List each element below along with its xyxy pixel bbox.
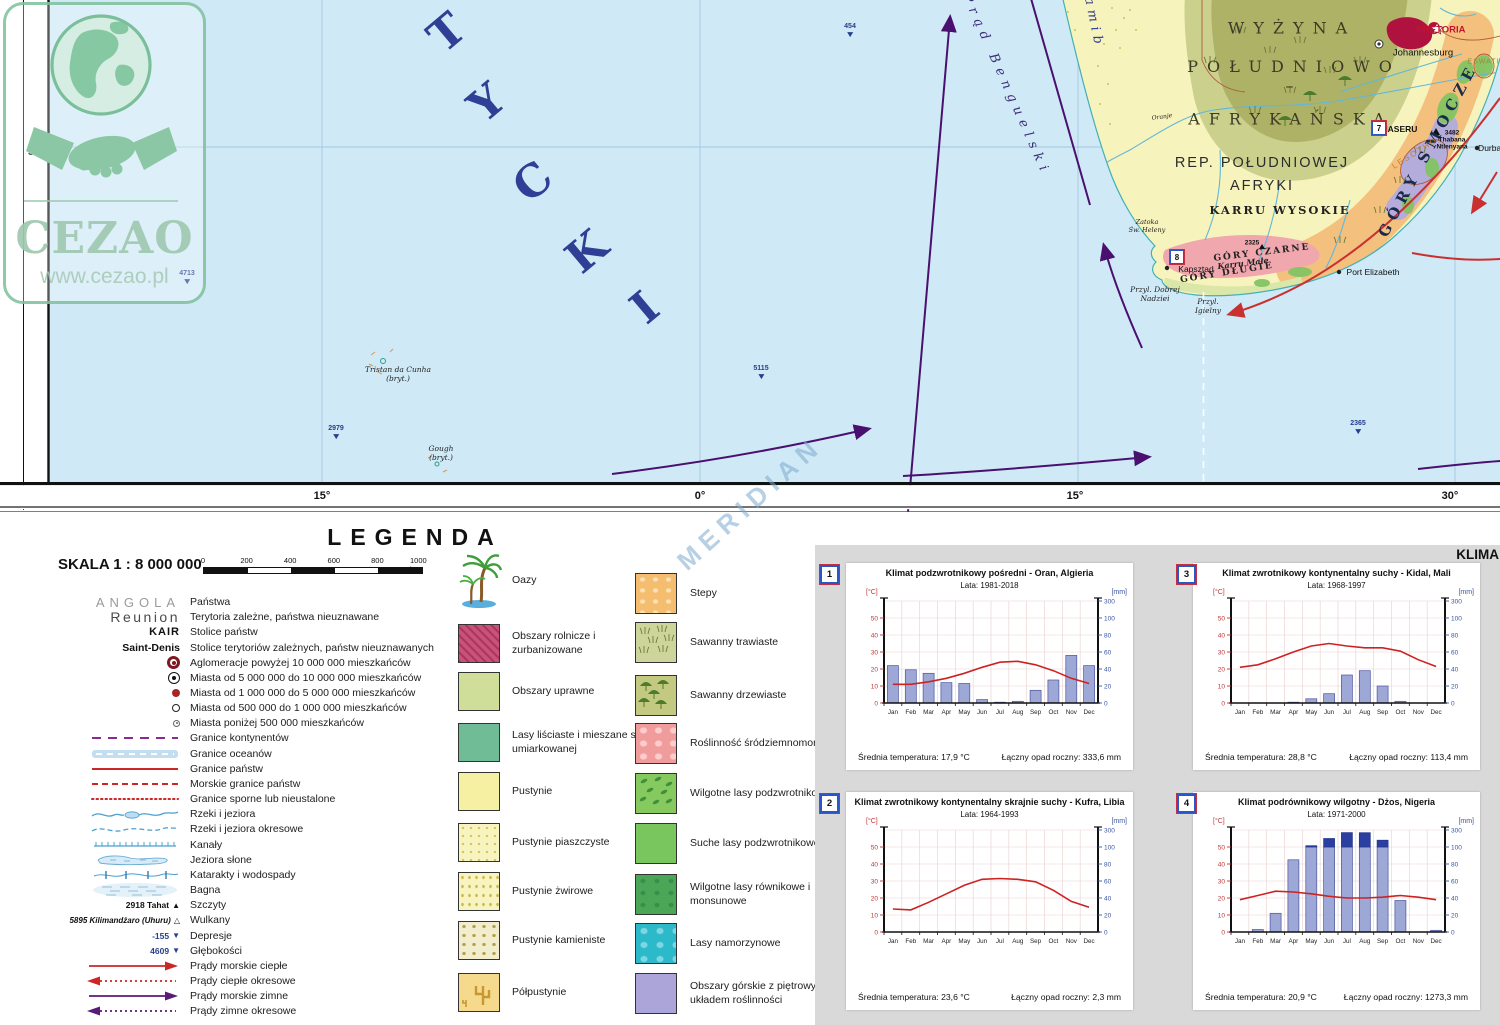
svg-text:Nov: Nov xyxy=(1413,938,1425,945)
chart-years: Lata: 1971-2000 xyxy=(1193,810,1480,819)
svg-text:Mar: Mar xyxy=(923,938,934,945)
svg-text:20: 20 xyxy=(1451,683,1459,690)
station-marker-7: 7 xyxy=(1372,121,1386,135)
legend-row-label: Granice kontynentów xyxy=(190,732,289,744)
chart-title: Klimat zwrotnikowy kontynentalny suchy -… xyxy=(1197,568,1476,578)
svg-text:Jun: Jun xyxy=(977,938,988,945)
svg-text:40: 40 xyxy=(871,861,879,868)
svg-text:Oct: Oct xyxy=(1049,709,1059,716)
legend-symbol-city-1m xyxy=(40,689,190,697)
veg-swatch-medit xyxy=(635,723,677,764)
svg-text:Jan: Jan xyxy=(888,938,899,945)
chart-marker-1: 1 xyxy=(820,565,839,584)
legend-section: LEGENDA SKALA 1 : 8 000 000 020040060080… xyxy=(0,516,815,1025)
svg-text:Oct: Oct xyxy=(1396,938,1406,945)
city-small-icon xyxy=(173,720,180,727)
svg-text:Sep: Sep xyxy=(1377,709,1389,716)
svg-text:300: 300 xyxy=(1104,598,1115,605)
svg-text:Apr: Apr xyxy=(1288,709,1298,716)
svg-text:Oct: Oct xyxy=(1396,709,1406,716)
legend-symbol-river xyxy=(40,807,190,821)
temp-axis-unit: [°C] xyxy=(1213,589,1225,596)
legend-row-label: Szczyty xyxy=(190,899,226,911)
poster-map-of-africa: T Y C K I Prąd Benguelski Namib WYŻYNA P… xyxy=(0,0,1500,1025)
precip-axis-unit: [mm] xyxy=(1458,589,1474,596)
avg-temp-text: Średnia temperatura: 23,6 °C xyxy=(858,992,970,1002)
legend-symbol-country-name: ANGOLA xyxy=(40,595,190,610)
svg-text:60: 60 xyxy=(1104,878,1112,885)
veg-swatch-sand xyxy=(458,823,500,862)
annual-precip-text: Łączny opad roczny: 333,6 mm xyxy=(1002,752,1121,762)
chart-years: Lata: 1964-1993 xyxy=(846,810,1133,819)
svg-text:20: 20 xyxy=(1218,666,1226,673)
map-section: T Y C K I Prąd Benguelski Namib WYŻYNA P… xyxy=(0,0,1500,516)
legend-symbol-border-continent xyxy=(40,732,190,744)
annual-precip-text: Łączny opad roczny: 1273,3 mm xyxy=(1344,992,1468,1002)
legend-symbol-river-seasonal xyxy=(40,822,190,836)
scale-bar-segments xyxy=(203,567,423,574)
chart-marker-3: 3 xyxy=(1177,565,1196,584)
svg-text:100: 100 xyxy=(1451,615,1462,622)
svg-text:40: 40 xyxy=(1451,666,1459,673)
svg-text:20: 20 xyxy=(1218,895,1226,902)
avg-temp-text: Średnia temperatura: 17,9 °C xyxy=(858,752,970,762)
svg-text:300: 300 xyxy=(1104,827,1115,834)
svg-text:Sep: Sep xyxy=(1030,709,1042,716)
svg-text:Mar: Mar xyxy=(1270,938,1281,945)
svg-text:Apr: Apr xyxy=(941,938,951,945)
svg-text:50: 50 xyxy=(1218,844,1226,851)
svg-text:Nov: Nov xyxy=(1066,709,1078,716)
svg-text:Mar: Mar xyxy=(1270,709,1281,716)
svg-text:Jan: Jan xyxy=(1235,709,1246,716)
svg-text:10: 10 xyxy=(871,912,879,919)
legend-symbol-waterfall xyxy=(40,868,190,882)
veg-swatch-stepy xyxy=(635,573,677,614)
climograph-card-oran: Klimat podzwrotnikowy pośredni - Oran, A… xyxy=(846,563,1133,770)
veg-swatch-drysub xyxy=(635,823,677,864)
svg-text:Sep: Sep xyxy=(1030,938,1042,945)
legend-row-label: Katarakty i wodospady xyxy=(190,869,296,881)
depression-icon: ▼ xyxy=(172,931,180,940)
veg-swatch-wetsub xyxy=(635,773,677,814)
legend-symbol-border-disputed xyxy=(40,793,190,805)
svg-text:0: 0 xyxy=(874,700,878,707)
legend-symbol-border-ocean xyxy=(40,748,190,760)
svg-text:20: 20 xyxy=(1104,912,1112,919)
svg-text:20: 20 xyxy=(1451,912,1459,919)
svg-text:0: 0 xyxy=(1451,700,1455,707)
svg-text:40: 40 xyxy=(1451,895,1459,902)
climograph-plot: 01020304050020406080100300JanFebMarAprMa… xyxy=(1193,597,1480,719)
legend-symbol-current-cold-seasonal xyxy=(40,1005,190,1017)
climograph-plot: 01020304050020406080100300JanFebMarAprMa… xyxy=(846,826,1133,948)
svg-text:Nov: Nov xyxy=(1413,709,1425,716)
legend-symbol-current-warm-seasonal xyxy=(40,975,190,987)
city-5m-icon xyxy=(168,672,180,684)
svg-text:Dec: Dec xyxy=(1430,938,1441,945)
station-marker-8: 8 xyxy=(1170,250,1184,264)
chart-years: Lata: 1981-2018 xyxy=(846,581,1133,590)
svg-text:50: 50 xyxy=(1218,615,1226,622)
svg-text:Feb: Feb xyxy=(905,709,916,716)
legend-symbol-salt-lake xyxy=(40,852,190,868)
veg-swatch-savtree xyxy=(635,675,677,716)
legend-row-label: Miasta od 5 000 000 do 10 000 000 mieszk… xyxy=(190,672,421,684)
legend-row-label: Prądy morskie ciepłe xyxy=(190,960,287,972)
veg-swatch-crops xyxy=(458,672,500,711)
scale-tick: 800 xyxy=(371,556,384,565)
legend-symbol-border-sea xyxy=(40,778,190,790)
temp-axis-unit: [°C] xyxy=(866,818,878,825)
legend-row-label: Miasta od 1 000 000 do 5 000 000 mieszka… xyxy=(190,687,415,699)
veg-swatch-agri xyxy=(458,624,500,663)
svg-text:30: 30 xyxy=(871,649,879,656)
legend-symbol-depression: -155▼ xyxy=(40,931,190,941)
svg-text:Dec: Dec xyxy=(1083,709,1094,716)
svg-text:30: 30 xyxy=(1218,878,1226,885)
legend-row-label: Morskie granice państw xyxy=(190,778,300,790)
precip-axis-unit: [mm] xyxy=(1111,818,1127,825)
legend-row-label: Jeziora słone xyxy=(190,854,252,866)
legend-symbol-city-10m xyxy=(40,656,190,669)
climograph-card-kidal: Klimat zwrotnikowy kontynentalny suchy -… xyxy=(1193,563,1480,770)
svg-text:80: 80 xyxy=(1104,861,1112,868)
svg-text:100: 100 xyxy=(1451,844,1462,851)
legend-title: LEGENDA xyxy=(290,524,540,551)
legend-symbol-territory-name: Reunion xyxy=(40,609,190,625)
svg-text:Jul: Jul xyxy=(996,709,1004,716)
legend-symbol-city-5m xyxy=(40,672,190,684)
chart-title: Klimat podrównikowy wilgotny - Dżos, Nig… xyxy=(1197,797,1476,807)
legend-row-label: Stolice terytoriów zależnych, państw nie… xyxy=(190,642,434,654)
svg-text:50: 50 xyxy=(871,615,879,622)
svg-text:10: 10 xyxy=(1218,683,1226,690)
veg-swatch-savgrass xyxy=(635,622,677,663)
legend-row-label: Państwa xyxy=(190,596,230,608)
legend-symbol-depth: 4609▼ xyxy=(40,946,190,956)
scale-label: SKALA 1 : 8 000 000 xyxy=(58,556,202,573)
chart-marker-4: 4 xyxy=(1177,794,1196,813)
svg-text:10: 10 xyxy=(1218,912,1226,919)
veg-swatch-equat xyxy=(635,874,677,915)
veg-swatch-semi xyxy=(458,973,500,1012)
map-drawing xyxy=(0,0,1500,516)
legend-symbol-canal xyxy=(40,839,190,851)
scale-tick: 0 xyxy=(201,556,205,565)
veg-swatch-desert xyxy=(458,772,500,811)
depth-icon: ▼ xyxy=(172,946,180,955)
city-10m-icon xyxy=(167,656,180,669)
avg-temp-text: Średnia temperatura: 20,9 °C xyxy=(1205,992,1317,1002)
svg-text:Jul: Jul xyxy=(1343,938,1351,945)
svg-text:Mar: Mar xyxy=(923,709,934,716)
svg-text:300: 300 xyxy=(1451,598,1462,605)
legend-symbol-peak: 2918 Tahat▲ xyxy=(40,900,190,910)
temp-axis-unit: [°C] xyxy=(866,589,878,596)
svg-text:May: May xyxy=(958,709,971,716)
legend-symbol-swamp xyxy=(40,882,190,898)
precip-axis-unit: [mm] xyxy=(1458,818,1474,825)
svg-text:Aug: Aug xyxy=(1012,938,1024,945)
svg-text:Jun: Jun xyxy=(1324,709,1335,716)
legend-row-label: Wulkany xyxy=(190,914,230,926)
climograph-card-kufra: Klimat zwrotnikowy kontynentalny skrajni… xyxy=(846,792,1133,1010)
legend-symbol-current-warm xyxy=(40,960,190,972)
city-500k-icon xyxy=(172,704,180,712)
peak-icon: ▲ xyxy=(172,901,180,910)
city-1m-icon xyxy=(172,689,180,697)
annual-precip-text: Łączny opad roczny: 2,3 mm xyxy=(1011,992,1121,1002)
legend-row-label: Rzeki i jeziora xyxy=(190,808,255,820)
svg-text:May: May xyxy=(1305,938,1318,945)
svg-text:50: 50 xyxy=(871,844,879,851)
climograph-card-dzos: Klimat podrównikowy wilgotny - Dżos, Nig… xyxy=(1193,792,1480,1010)
svg-text:0: 0 xyxy=(1221,700,1225,707)
svg-text:May: May xyxy=(1305,709,1318,716)
legend-row-label: Granice państw xyxy=(190,763,263,775)
svg-text:40: 40 xyxy=(1218,861,1226,868)
svg-text:20: 20 xyxy=(871,666,879,673)
svg-text:Jun: Jun xyxy=(977,709,988,716)
svg-text:Feb: Feb xyxy=(905,938,916,945)
svg-text:40: 40 xyxy=(1104,895,1112,902)
chart-marker-2: 2 xyxy=(820,794,839,813)
svg-text:60: 60 xyxy=(1451,878,1459,885)
legend-row-label: Granice oceanów xyxy=(190,748,272,760)
svg-text:Jul: Jul xyxy=(996,938,1004,945)
svg-text:Aug: Aug xyxy=(1359,709,1371,716)
legend-row-label: Głębokości xyxy=(190,945,242,957)
svg-text:Jul: Jul xyxy=(1343,709,1351,716)
scale-tick: 200 xyxy=(240,556,253,565)
svg-text:Jun: Jun xyxy=(1324,938,1335,945)
legend-row-label: Kanały xyxy=(190,839,222,851)
legend-row-label: Rzeki i jeziora okresowe xyxy=(190,823,303,835)
legend-row-label: Prądy morskie zimne xyxy=(190,990,288,1002)
svg-text:40: 40 xyxy=(1218,632,1226,639)
volcano-icon: △ xyxy=(174,916,180,925)
legend-row-label: Miasta poniżej 500 000 mieszkańców xyxy=(190,717,364,729)
avg-temp-text: Średnia temperatura: 28,8 °C xyxy=(1205,752,1317,762)
svg-text:0: 0 xyxy=(874,929,878,936)
scale-tick: 600 xyxy=(328,556,341,565)
svg-text:40: 40 xyxy=(1104,666,1112,673)
climograph-plot: 01020304050020406080100300JanFebMarAprMa… xyxy=(846,597,1133,719)
svg-text:100: 100 xyxy=(1104,844,1115,851)
legend-symbol-volcano: 5895 Kilimandżaro (Uhuru)△ xyxy=(40,916,190,925)
svg-text:0: 0 xyxy=(1451,929,1455,936)
panel-header: KLIMA xyxy=(1456,547,1499,562)
chart-title: Klimat zwrotnikowy kontynentalny skrajni… xyxy=(850,797,1129,807)
legend-symbol-current-cold xyxy=(40,990,190,1002)
svg-text:Jan: Jan xyxy=(1235,938,1246,945)
svg-text:Aug: Aug xyxy=(1359,938,1371,945)
scale-tick: 400 xyxy=(284,556,297,565)
svg-text:20: 20 xyxy=(1104,683,1112,690)
legend-row-label: Stolice państw xyxy=(190,626,258,638)
svg-text:0: 0 xyxy=(1221,929,1225,936)
veg-swatch-temperate xyxy=(458,723,500,762)
legend-row-label: Prądy ciepłe okresowe xyxy=(190,975,296,987)
veg-swatch-mountain xyxy=(635,973,677,1014)
svg-text:Dec: Dec xyxy=(1083,938,1094,945)
svg-text:60: 60 xyxy=(1451,649,1459,656)
annual-precip-text: Łączny opad roczny: 113,4 mm xyxy=(1349,752,1468,762)
svg-text:0: 0 xyxy=(1104,700,1108,707)
chart-title: Klimat podzwrotnikowy pośredni - Oran, A… xyxy=(850,568,1129,578)
legend-symbol-dep-capital-name: Saint-Denis xyxy=(40,642,190,654)
svg-text:Sep: Sep xyxy=(1377,938,1389,945)
svg-text:0: 0 xyxy=(1104,929,1108,936)
svg-text:Feb: Feb xyxy=(1252,709,1263,716)
svg-text:80: 80 xyxy=(1451,632,1459,639)
svg-text:20: 20 xyxy=(871,895,879,902)
svg-text:Feb: Feb xyxy=(1252,938,1263,945)
svg-text:Nov: Nov xyxy=(1066,938,1078,945)
svg-text:Jan: Jan xyxy=(888,709,899,716)
veg-swatch-mangrove xyxy=(635,923,677,964)
legend-row-label: Terytoria zależne, państwa nieuznawane xyxy=(190,611,379,623)
precip-axis-unit: [mm] xyxy=(1111,589,1127,596)
svg-text:60: 60 xyxy=(1104,649,1112,656)
legend-row-label: Bagna xyxy=(190,884,220,896)
legend-symbol-capital-name: KAIR xyxy=(40,626,190,638)
scale-bar: 02004006008001000 km xyxy=(203,556,443,578)
svg-text:40: 40 xyxy=(871,632,879,639)
climograph-plot: 01020304050020406080100300JanFebMarAprMa… xyxy=(1193,826,1480,948)
svg-text:Aug: Aug xyxy=(1012,709,1024,716)
svg-text:Oct: Oct xyxy=(1049,938,1059,945)
svg-text:80: 80 xyxy=(1104,632,1112,639)
legend-symbol-border-country xyxy=(40,763,190,775)
scale-tick: 1000 km xyxy=(410,556,432,574)
veg-swatch-stony xyxy=(458,921,500,960)
svg-text:Dec: Dec xyxy=(1430,709,1441,716)
svg-text:Apr: Apr xyxy=(1288,938,1298,945)
legend-row-label: Granice sporne lub nieustalone xyxy=(190,793,335,805)
legend-symbol-city-500k xyxy=(40,704,190,712)
temp-axis-unit: [°C] xyxy=(1213,818,1225,825)
legend-row-label: Aglomeracje powyżej 10 000 000 mieszkańc… xyxy=(190,657,411,669)
svg-text:80: 80 xyxy=(1451,861,1459,868)
legend-symbol-city-sm xyxy=(40,720,190,727)
svg-text:300: 300 xyxy=(1451,827,1462,834)
svg-text:100: 100 xyxy=(1104,615,1115,622)
legend-row-label: Prądy zimne okresowe xyxy=(190,1005,296,1017)
legend-row-label: Miasta od 500 000 do 1 000 000 mieszkańc… xyxy=(190,702,407,714)
svg-text:May: May xyxy=(958,938,971,945)
svg-text:30: 30 xyxy=(1218,649,1226,656)
veg-swatch-gravel xyxy=(458,872,500,911)
chart-years: Lata: 1968-1997 xyxy=(1193,581,1480,590)
svg-text:Apr: Apr xyxy=(941,709,951,716)
svg-text:30: 30 xyxy=(871,878,879,885)
legend-row-label: Depresje xyxy=(190,930,232,942)
svg-text:10: 10 xyxy=(871,683,879,690)
oasis-palm-icon xyxy=(455,552,503,615)
